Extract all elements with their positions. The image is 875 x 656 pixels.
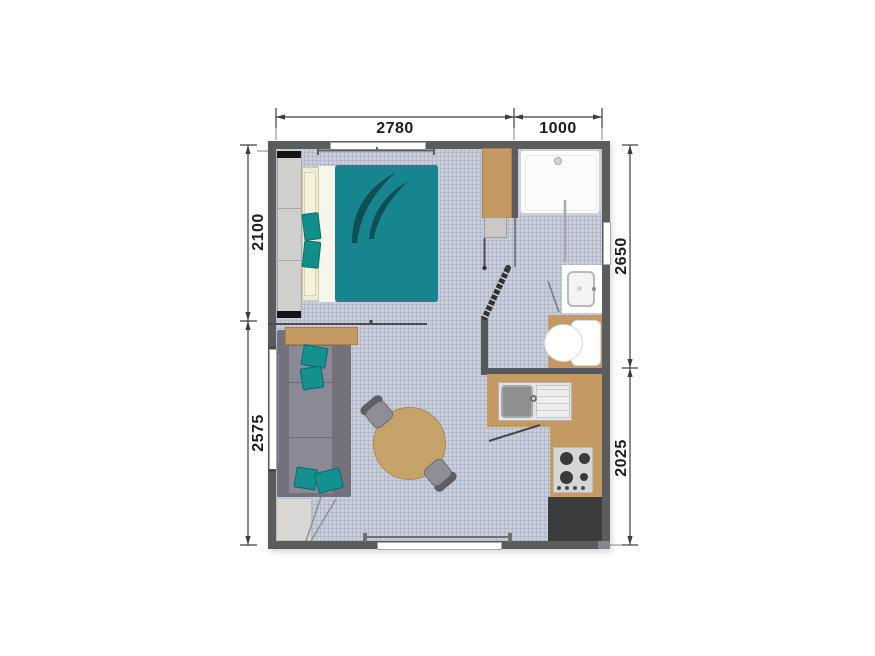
window-frame-end <box>268 346 276 349</box>
wall-left <box>268 141 276 549</box>
wardrobe-end-panel <box>277 311 301 318</box>
side-window <box>269 349 277 471</box>
pillow <box>302 240 322 269</box>
bedroom-bathroom-partition <box>512 141 518 218</box>
bathroom-wall-stub <box>481 316 488 375</box>
dim-label-left-2: 2575 <box>250 414 267 452</box>
floor-plan-canvas: 2780 1000 2100 2575 2650 2025 <box>0 0 875 656</box>
burner <box>560 471 573 484</box>
scatter-cushion <box>299 365 324 390</box>
burner <box>560 452 573 465</box>
wardrobe <box>277 151 302 318</box>
entrance-mat <box>276 498 312 541</box>
wall-corner-cap <box>598 541 610 549</box>
hob-knob <box>557 486 561 490</box>
bathroom-window <box>603 222 611 265</box>
wall-top <box>268 141 610 149</box>
dim-label-right-2: 2025 <box>613 439 630 477</box>
dim-label-top-2: 1000 <box>539 120 577 137</box>
wardrobe-shelf-line <box>277 260 302 261</box>
toilet-bowl <box>544 324 583 362</box>
hob-knob <box>565 486 569 490</box>
washbasin-drain <box>577 286 582 291</box>
side-shelf <box>285 327 358 345</box>
pillow <box>301 212 321 241</box>
patio-window <box>377 542 502 550</box>
bathroom-shelf <box>484 217 507 238</box>
duvet <box>335 165 438 302</box>
sofa-seam <box>289 437 332 438</box>
bedroom-window <box>330 142 426 150</box>
bed-sheet <box>319 166 336 302</box>
sink-bowl <box>501 385 533 418</box>
hob-knob <box>573 486 577 490</box>
window-frame-end <box>268 469 276 472</box>
washbasin-tap <box>592 287 596 291</box>
sink-drainer <box>536 385 570 418</box>
storage-cabinet <box>482 148 512 218</box>
hob-knob <box>581 486 585 490</box>
shower-drain <box>554 157 562 165</box>
dim-label-top-1: 2780 <box>376 120 414 137</box>
sink-tap <box>530 395 537 402</box>
dark-base-cabinet <box>548 497 602 541</box>
dim-label-right-1: 2650 <box>613 237 630 275</box>
wall-right <box>602 141 610 549</box>
wardrobe-shelf-line <box>277 208 302 209</box>
dim-label-left-1: 2100 <box>250 213 267 251</box>
burner <box>580 473 588 481</box>
scatter-cushion <box>300 344 328 369</box>
wardrobe-end-panel <box>277 151 301 158</box>
burner <box>579 453 590 464</box>
